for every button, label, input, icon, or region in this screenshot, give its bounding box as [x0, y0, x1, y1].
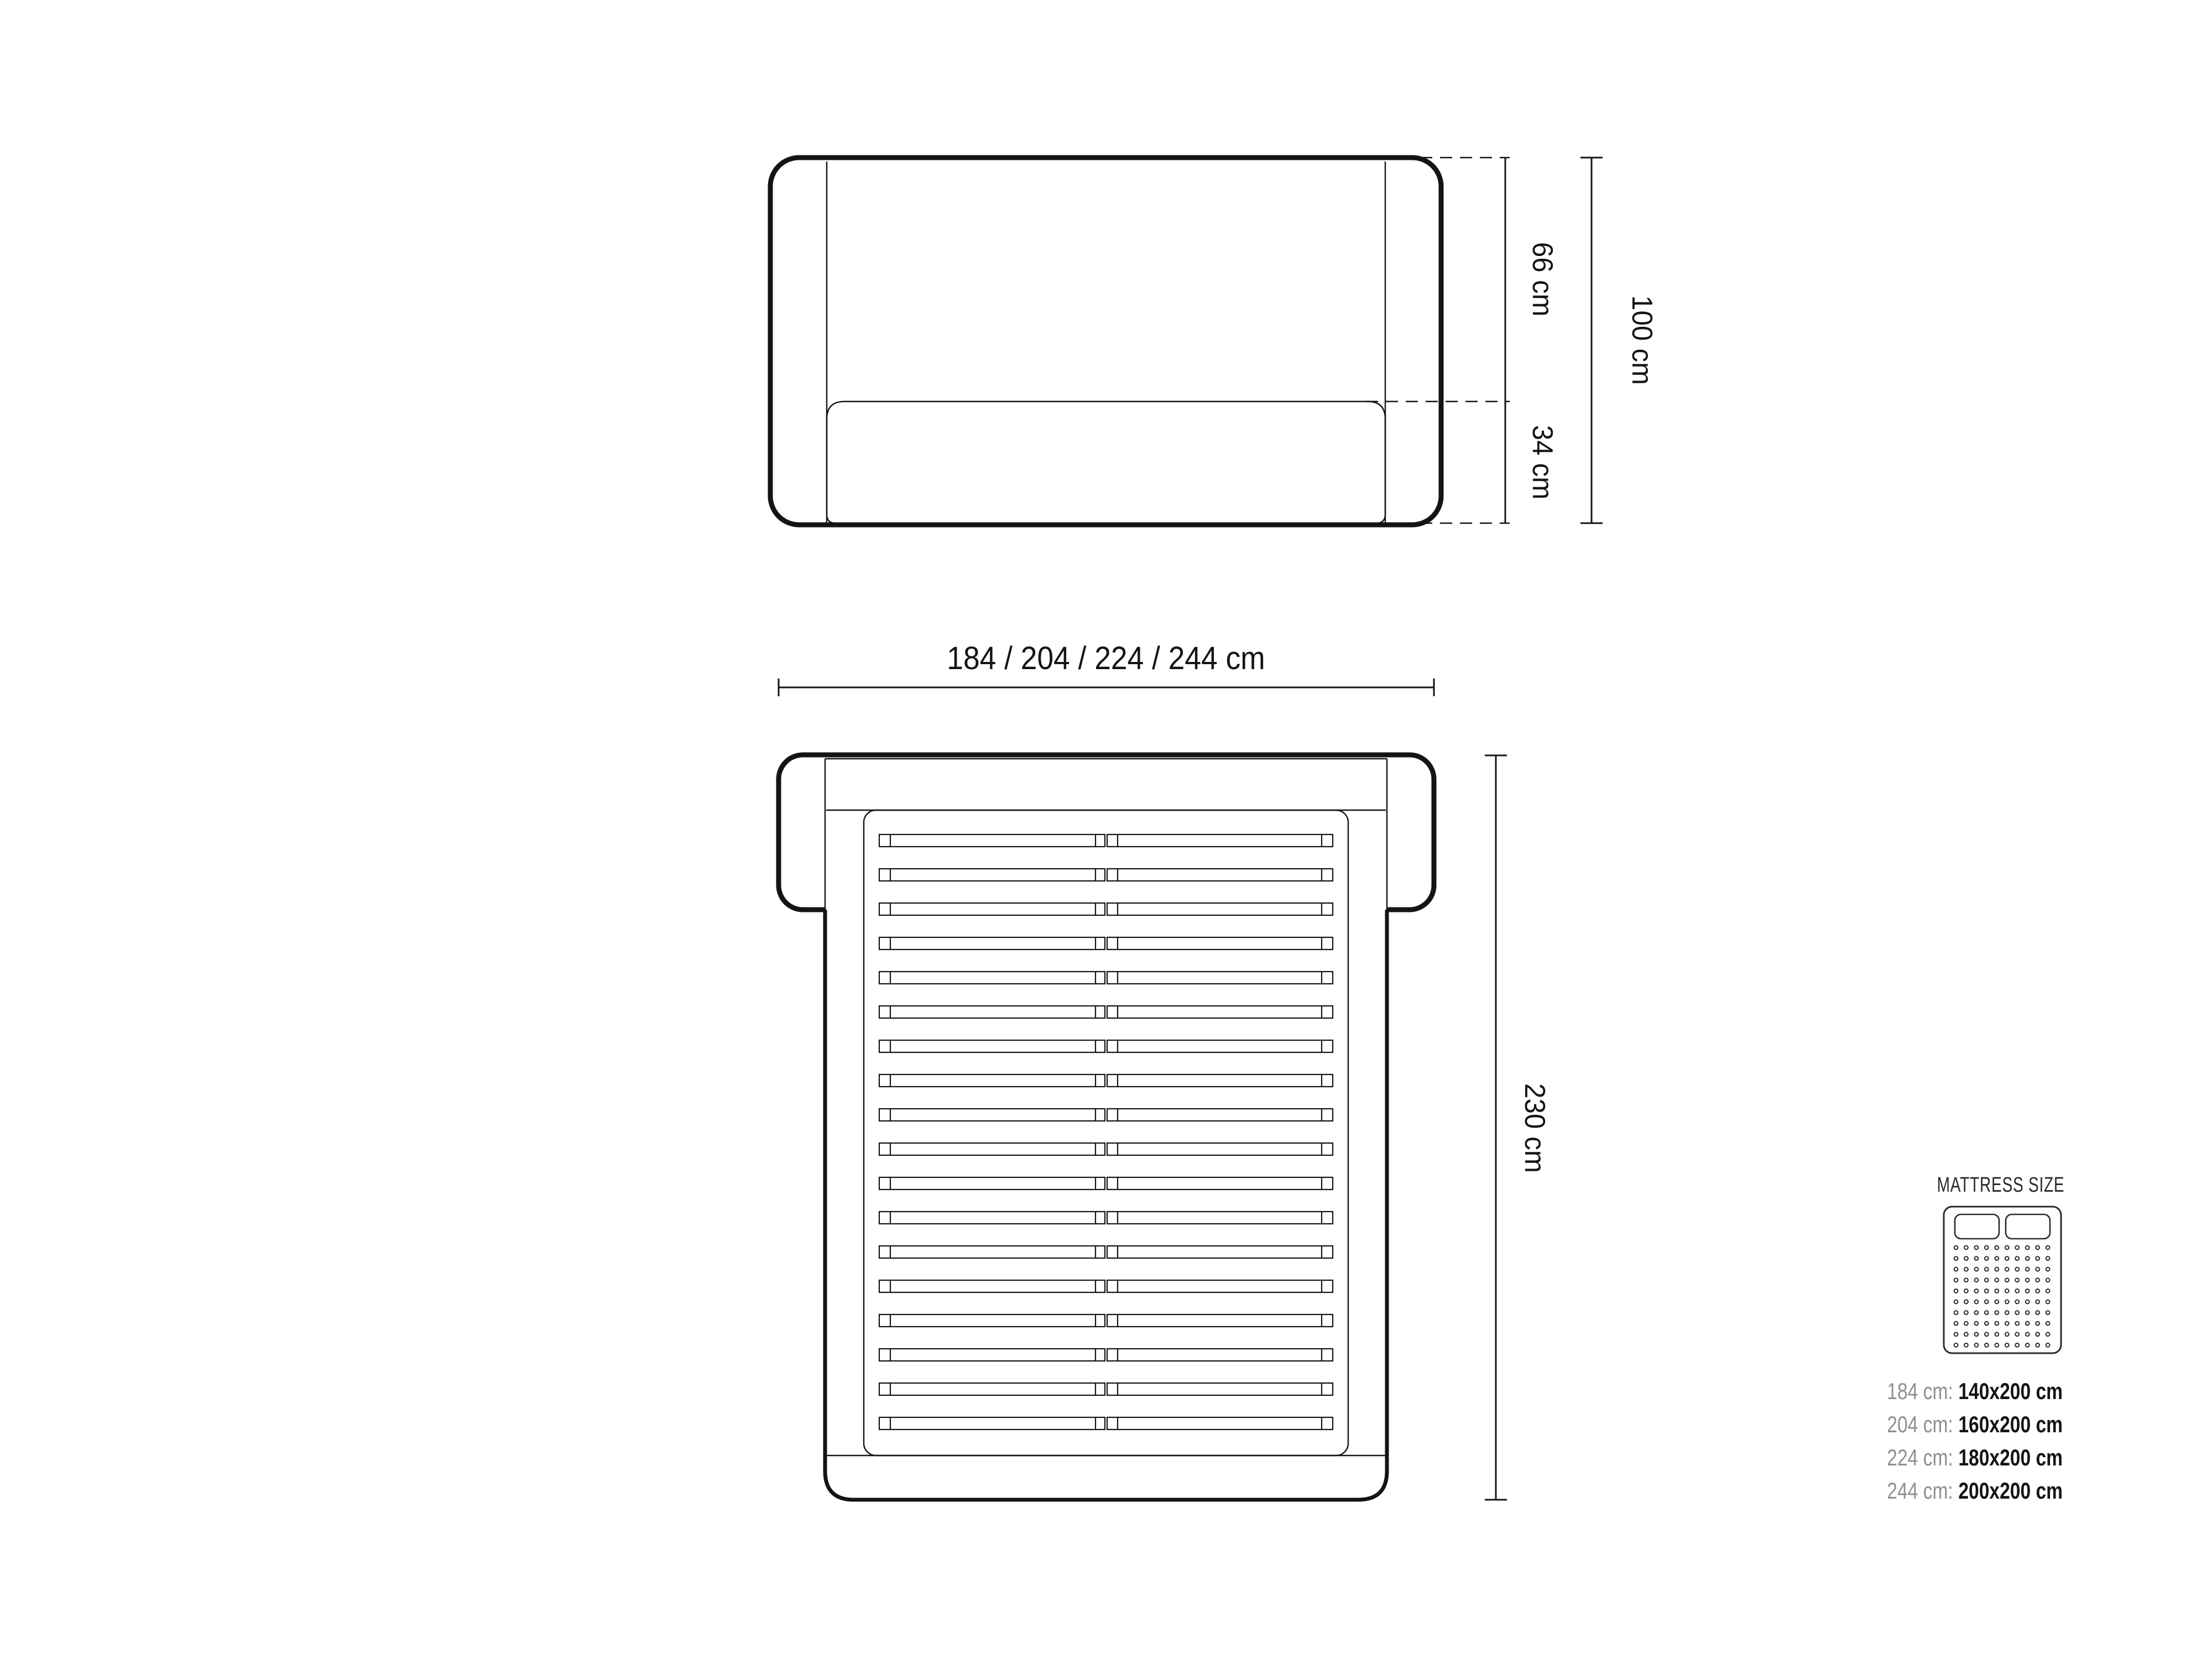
- length-label: 230 cm: [1519, 1083, 1551, 1173]
- lower-height-label: 34 cm: [1527, 425, 1559, 499]
- mattress-size-value: 200x200 cm: [1958, 1479, 2063, 1504]
- frame-width-label: 224 cm:: [1887, 1446, 1953, 1471]
- bed-dimension-diagram: 66 cm 34 cm 100 cm 184 / 204 / 224 / 244…: [0, 0, 2212, 1659]
- plan-view: [779, 755, 1434, 1500]
- mattress-size-value: 180x200 cm: [1958, 1446, 2063, 1471]
- mattress-panel-title: MATTRESS SIZE: [1937, 1173, 2065, 1197]
- mattress-icon: [1944, 1207, 2061, 1353]
- frame-width-label: 184 cm:: [1887, 1379, 1953, 1405]
- front-elevation-view: [770, 158, 1441, 525]
- mattress-size-value: 140x200 cm: [1958, 1379, 2063, 1405]
- mattress-size-value: 160x200 cm: [1958, 1412, 2063, 1438]
- total-height-label: 100 cm: [1626, 295, 1658, 385]
- size-row: 244 cm:200x200 cm: [1887, 1479, 2063, 1504]
- size-row: 204 cm:160x200 cm: [1887, 1412, 2063, 1438]
- front-bed-outline: [770, 158, 1441, 525]
- pillow-right-icon: [2006, 1214, 2050, 1239]
- size-row: 224 cm:180x200 cm: [1887, 1446, 2063, 1471]
- width-options-label: 184 / 204 / 224 / 244 cm: [947, 640, 1265, 676]
- upper-height-label: 66 cm: [1527, 242, 1559, 316]
- pillow-left-icon: [1955, 1214, 1999, 1239]
- frame-width-label: 204 cm:: [1887, 1412, 1953, 1438]
- frame-width-label: 244 cm:: [1887, 1479, 1953, 1504]
- size-row: 184 cm:140x200 cm: [1887, 1379, 2063, 1405]
